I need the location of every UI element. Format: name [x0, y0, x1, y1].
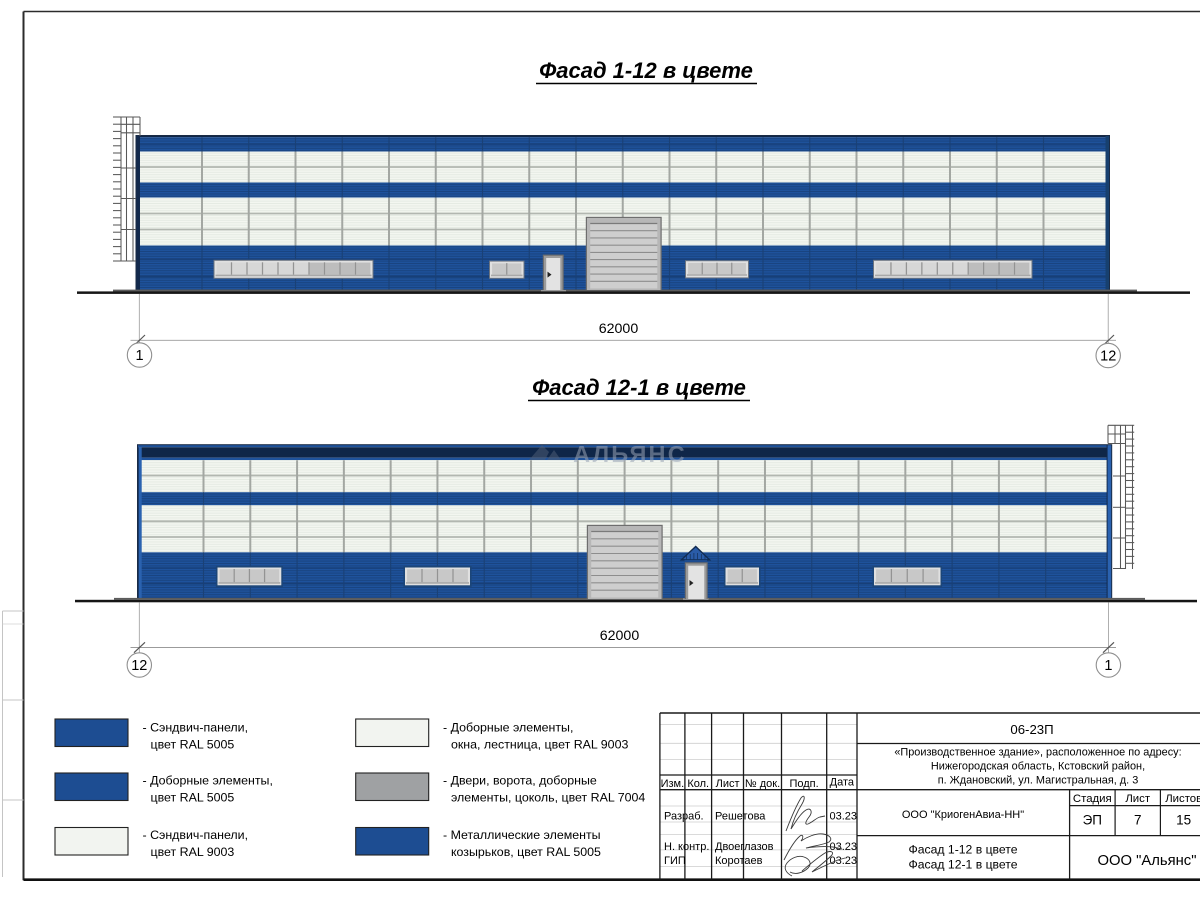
- svg-text:АЛЬЯНС: АЛЬЯНС: [573, 441, 687, 467]
- svg-text:62000: 62000: [600, 628, 640, 644]
- svg-text:цвет RAL 9003: цвет RAL 9003: [151, 845, 235, 859]
- svg-text:7: 7: [1134, 813, 1142, 828]
- svg-text:- Двери, ворота, доборные: - Двери, ворота, доборные: [443, 774, 597, 788]
- svg-text:Стадия: Стадия: [1073, 793, 1112, 805]
- svg-text:Дата: Дата: [830, 777, 855, 789]
- svg-text:Фасад 12-1 в цвете: Фасад 12-1 в цвете: [532, 375, 746, 400]
- svg-text:цвет RAL 5005: цвет RAL 5005: [151, 791, 235, 805]
- svg-text:1: 1: [135, 348, 143, 364]
- svg-text:Изм.: Изм.: [661, 778, 685, 790]
- svg-text:12: 12: [131, 658, 147, 674]
- svg-text:цвет RAL 5005: цвет RAL 5005: [151, 738, 235, 752]
- svg-text:Н. контр.: Н. контр.: [664, 841, 709, 853]
- svg-text:козырьков, цвет RAL 5005: козырьков, цвет RAL 5005: [451, 845, 601, 859]
- svg-text:Лист: Лист: [716, 778, 740, 790]
- svg-text:Подп.: Подп.: [789, 778, 818, 790]
- svg-text:Двоеглазов: Двоеглазов: [715, 841, 774, 853]
- svg-text:Коротаев: Коротаев: [715, 855, 763, 867]
- svg-text:Решетова: Решетова: [715, 811, 766, 823]
- svg-text:ГИП: ГИП: [664, 855, 686, 867]
- svg-text:62000: 62000: [599, 321, 639, 337]
- svg-text:Фасад 1-12 в цвете: Фасад 1-12 в цвете: [539, 58, 753, 83]
- svg-text:03.23: 03.23: [830, 855, 858, 867]
- svg-text:ООО "Альянс": ООО "Альянс": [1098, 853, 1197, 869]
- svg-text:ООО "КриогенАвиа-НН": ООО "КриогенАвиа-НН": [902, 809, 1024, 821]
- svg-text:Фасад 12-1 в цвете: Фасад 12-1 в цвете: [909, 858, 1018, 872]
- svg-text:03.23: 03.23: [830, 811, 858, 823]
- svg-text:п. Ждановский, ул. Магистральн: п. Ждановский, ул. Магистральная, д. 3: [938, 775, 1139, 787]
- svg-text:1: 1: [1104, 658, 1112, 674]
- svg-text:15: 15: [1176, 813, 1191, 828]
- svg-text:- Доборные элементы,: - Доборные элементы,: [143, 774, 273, 788]
- svg-text:Лист: Лист: [1125, 793, 1151, 805]
- svg-text:- Металлические элементы: - Металлические элементы: [443, 828, 601, 842]
- svg-text:элементы, цоколь, цвет RAL 700: элементы, цоколь, цвет RAL 7004: [451, 791, 645, 805]
- svg-text:Фасад 1-12 в цвете: Фасад 1-12 в цвете: [909, 843, 1018, 857]
- svg-text:12: 12: [1100, 349, 1116, 365]
- svg-text:окна, лестница, цвет RAL 9003: окна, лестница, цвет RAL 9003: [451, 738, 628, 752]
- svg-text:№ док.: № док.: [745, 778, 780, 790]
- svg-text:ЭП: ЭП: [1083, 813, 1102, 828]
- svg-text:06-23П: 06-23П: [1010, 722, 1053, 737]
- svg-text:Листов: Листов: [1165, 793, 1200, 805]
- svg-text:Нижегородская область, Кстовск: Нижегородская область, Кстовский район,: [931, 761, 1145, 773]
- svg-text:Разраб.: Разраб.: [664, 811, 704, 823]
- svg-text:- Сэндвич-панели,: - Сэндвич-панели,: [143, 721, 249, 735]
- svg-text:- Сэндвич-панели,: - Сэндвич-панели,: [143, 828, 249, 842]
- svg-text:- Доборные элементы,: - Доборные элементы,: [443, 721, 573, 735]
- svg-text:«Производственное здание», рас: «Производственное здание», расположенное…: [894, 747, 1181, 759]
- svg-text:Кол.: Кол.: [687, 778, 709, 790]
